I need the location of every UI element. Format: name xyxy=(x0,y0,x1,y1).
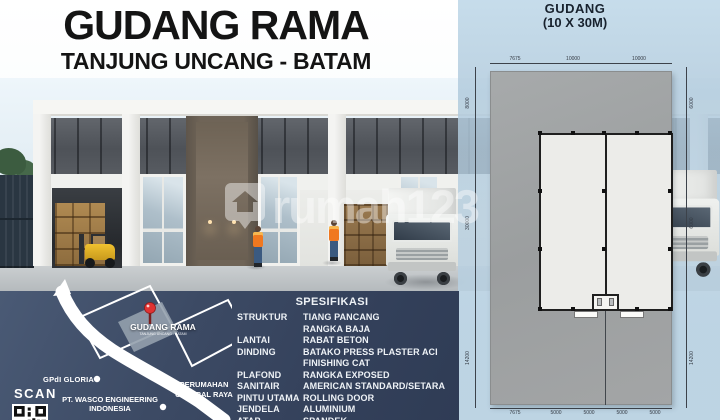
truck-wheel xyxy=(696,262,710,276)
plan-toilet-room xyxy=(592,294,619,311)
dimension-label: 10000 xyxy=(619,56,659,62)
shipping-containers xyxy=(0,175,34,268)
map-poi-label: PERUMAHAN CENTRAL RAYA xyxy=(166,380,242,399)
plan-title: GUDANG (10 X 30M) xyxy=(482,2,668,30)
qr-code-icon xyxy=(12,404,48,420)
poi-dot xyxy=(199,401,205,407)
dimension-label: 5000 xyxy=(635,410,675,416)
worker xyxy=(252,226,264,268)
spec-value: ROLLING DOOR xyxy=(303,393,458,405)
watermark: rumah123 xyxy=(224,182,478,230)
spec-row: PINTU UTAMAROLLING DOOR xyxy=(237,393,458,405)
dimension-line-bottom xyxy=(490,408,672,409)
pin-highlight xyxy=(147,305,150,308)
header: GUDANG RAMA TANJUNG UNCANG - BATAM xyxy=(16,5,416,75)
watermark-logo-icon xyxy=(224,182,266,230)
plan-columns xyxy=(538,131,542,135)
truck-wheel xyxy=(394,272,407,285)
spec-value: RANGKA BAJA xyxy=(303,324,458,336)
spec-label: ATAP xyxy=(237,416,303,420)
plan-title-line2: (10 X 30M) xyxy=(482,16,668,30)
spec-row: ATAPSPANDEK xyxy=(237,416,458,420)
spec-label: SANITAIR xyxy=(237,381,303,393)
spec-label xyxy=(237,358,303,370)
map-pin-icon xyxy=(145,303,156,314)
safety-vest xyxy=(253,232,263,247)
specs-list: STRUKTURTIANG PANCANG RANGKA BAJA LANTAI… xyxy=(232,312,458,420)
page-title: GUDANG RAMA xyxy=(16,5,416,47)
poi-line: PERUMAHAN xyxy=(166,380,242,390)
spec-value: TIANG PANCANG xyxy=(303,312,458,324)
poi-line: CENTRAL RAYA xyxy=(166,390,242,400)
poi-dot xyxy=(94,376,100,382)
plan-rolling-door xyxy=(574,311,598,318)
spec-label: STRUKTUR xyxy=(237,312,303,324)
plan-title-line1: GUDANG xyxy=(482,2,668,16)
spec-row: SANITAIRAMERICAN STANDARD/SETARA xyxy=(237,381,458,393)
worker-boots xyxy=(330,257,338,261)
specs-heading: SPESIFIKASI xyxy=(232,296,432,308)
spec-row: PLAFONDRANGKA EXPOSED xyxy=(237,370,458,382)
map-pin-sublabel: TANJUNG UNCANG - BATAM xyxy=(124,332,202,336)
truck-wheel xyxy=(437,272,450,285)
forklift-wheel xyxy=(85,258,95,268)
truck-bumper xyxy=(388,262,456,271)
spec-value: RABAT BETON xyxy=(303,335,458,347)
dimension-label: 6000 xyxy=(689,83,695,123)
spec-label: JENDELA xyxy=(237,404,303,416)
dimension-line-top xyxy=(490,63,672,64)
spec-row: STRUKTURTIANG PANCANG xyxy=(237,312,458,324)
poi-line: PT. WASCO ENGINEERING xyxy=(60,395,160,404)
spec-label: LANTAI xyxy=(237,335,303,347)
spec-row: FINISHING CAT xyxy=(237,358,458,370)
spec-row: RANGKA BAJA xyxy=(237,324,458,336)
toilet-fixture xyxy=(609,298,614,306)
flyer-poster: 7675 10000 10000 7675 5000 5000 5000 500… xyxy=(0,0,720,420)
scan-label: SCAN xyxy=(14,386,57,401)
spec-row: LANTAIRABAT BETON xyxy=(237,335,458,347)
spec-value: RANGKA EXPOSED xyxy=(303,370,458,382)
spec-row: DINDINGBATAKO PRESS PLASTER ACI xyxy=(237,347,458,359)
dimension-label: 7675 xyxy=(495,410,535,416)
dimension-label: 14200 xyxy=(465,338,471,378)
plan-unit-divider xyxy=(605,135,607,309)
worker-legs xyxy=(330,241,338,257)
dimension-label: 14200 xyxy=(689,338,695,378)
spec-value: BATAKO PRESS PLASTER ACI xyxy=(303,347,458,359)
glass-window xyxy=(140,174,186,266)
worker-boots xyxy=(254,263,262,267)
poi-dot xyxy=(160,404,166,410)
downlight xyxy=(208,220,212,224)
map-poi-label: GPdI GLORIA xyxy=(24,375,94,384)
spec-value: SPANDEK xyxy=(303,416,458,420)
road-arrow xyxy=(53,279,71,296)
spec-value: ALUMINIUM xyxy=(303,404,458,416)
forklift-wheel xyxy=(105,258,115,268)
plan-rolling-door xyxy=(620,311,644,318)
dimension-label: 6000 xyxy=(689,203,695,243)
dimension-label: 10000 xyxy=(553,56,593,62)
dimension-label: 7675 xyxy=(495,56,535,62)
spec-label: PLAFOND xyxy=(237,370,303,382)
qr-pattern xyxy=(14,406,46,420)
spec-value: AMERICAN STANDARD/SETARA xyxy=(303,381,458,393)
poi-line: INDONESIA xyxy=(60,404,160,413)
spec-label: DINDING xyxy=(237,347,303,359)
map-poi-label: PT. WASCO ENGINEERING INDONESIA xyxy=(60,395,160,413)
spec-label xyxy=(237,324,303,336)
forklift-mast xyxy=(79,234,84,264)
facade-column xyxy=(122,114,140,266)
watermark-text: rumah123 xyxy=(272,183,478,230)
dimension-line-right xyxy=(686,67,687,408)
spec-label: PINTU UTAMA xyxy=(237,393,303,405)
container-gap xyxy=(0,218,34,220)
worker-legs xyxy=(254,247,262,263)
specifications: SPESIFIKASI STRUKTURTIANG PANCANG RANGKA… xyxy=(232,296,458,420)
facade-column xyxy=(33,114,51,266)
map-pin-label: GUDANG RAMA xyxy=(124,322,202,332)
toilet-fixture xyxy=(597,298,602,306)
plan-divider-extension xyxy=(605,311,606,405)
page-subtitle: TANJUNG UNCANG - BATAM xyxy=(16,48,416,75)
spec-value: FINISHING CAT xyxy=(303,358,458,370)
dimension-line-left xyxy=(475,67,476,408)
dimension-label: 8000 xyxy=(465,83,471,123)
truck-grille xyxy=(396,248,448,260)
spec-row: JENDELAALUMINIUM xyxy=(237,404,458,416)
forklift xyxy=(77,234,121,268)
